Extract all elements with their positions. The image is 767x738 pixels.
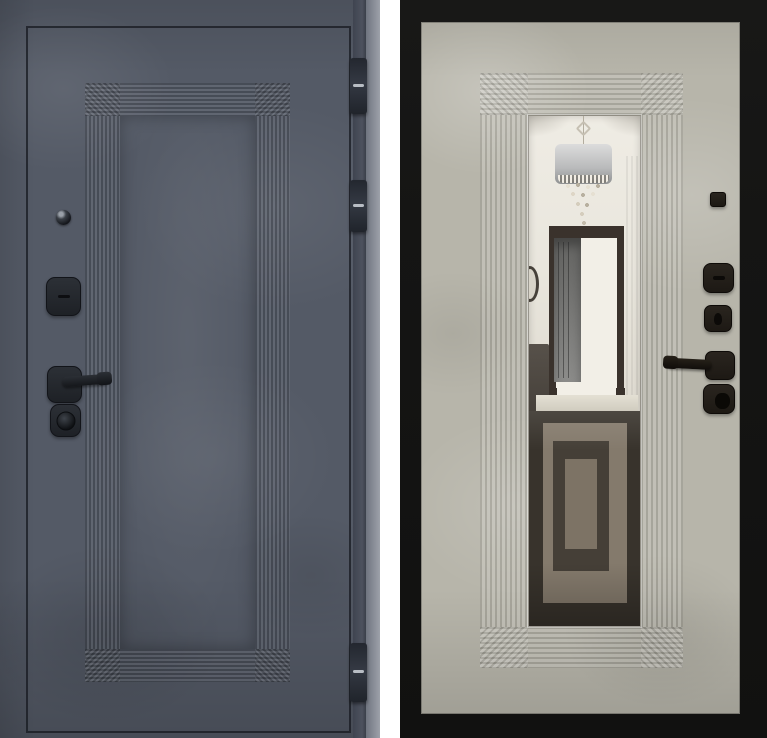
exterior-door-photo — [0, 0, 380, 738]
hinge-middle — [350, 180, 367, 232]
lever-handle — [62, 374, 110, 387]
lock-escutcheon — [46, 277, 81, 316]
mirror-molding-corner-bl — [480, 627, 528, 668]
interior-door-photo — [400, 0, 767, 738]
lever-handle-interior — [666, 358, 712, 370]
lock-escutcheon-interior — [703, 263, 734, 293]
floor-gloss — [529, 411, 641, 627]
molding-right-band — [255, 116, 290, 649]
thumb-turn-knob — [703, 384, 735, 414]
interior-gray-door-reflection — [554, 238, 581, 382]
hallway-floor-reflection — [529, 411, 641, 627]
mirror-molding-corner-tr — [641, 73, 683, 115]
cylinder-lock — [50, 404, 81, 437]
photo-background-strip — [366, 0, 380, 738]
door-product-photo — [0, 0, 767, 738]
night-latch — [710, 192, 726, 207]
round-wall-mirror-edge — [528, 266, 539, 302]
keyhole-escutcheon — [704, 305, 732, 332]
peephole — [56, 210, 71, 225]
hinge-bottom — [350, 643, 367, 702]
mirror-molding-corner-tl — [480, 73, 528, 115]
hinge-top — [350, 58, 367, 114]
recessed-center-panel — [120, 116, 255, 649]
full-length-mirror — [528, 115, 641, 627]
chandelier-drum-shade — [555, 144, 612, 184]
chandelier-crystals — [562, 182, 606, 228]
mirror-molding-left — [480, 115, 528, 627]
floor-threshold — [536, 395, 638, 411]
molding-corner-bl — [85, 649, 120, 682]
molding-corner-br — [255, 649, 290, 682]
mirror-molding-right — [641, 115, 683, 627]
molding-corner-tl — [85, 83, 120, 116]
mirror-molding-corner-br — [641, 627, 683, 668]
molding-corner-tr — [255, 83, 290, 116]
